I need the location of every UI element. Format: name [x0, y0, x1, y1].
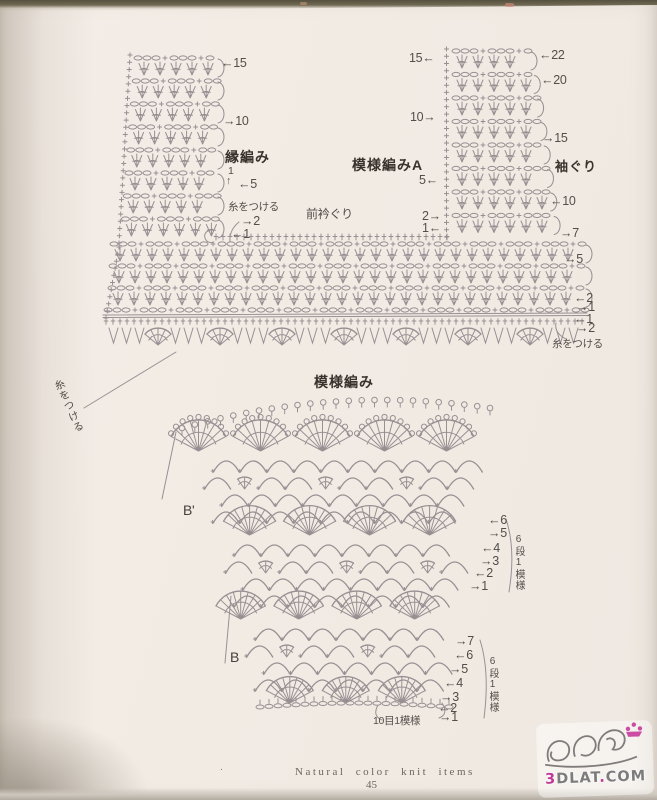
row-arrow: →2 — [576, 322, 595, 335]
row-arrow: ←5 — [238, 178, 257, 191]
row-arrow: →5 — [449, 663, 468, 676]
row-arrow: 10→ — [410, 111, 436, 124]
marker-b: B — [230, 650, 239, 664]
row-repeat-label: 6段1模様 — [513, 534, 523, 591]
row-arrow: →15 — [542, 132, 568, 145]
row-arrow: ←1 — [231, 228, 250, 241]
watermark-text: 3DLAT.COM — [537, 768, 653, 788]
pattern-title: 模様編み — [314, 375, 374, 389]
book-series-title: Natural color knit items — [295, 766, 475, 778]
row-arrow: ←6 — [454, 649, 473, 662]
row-arrow: ←22 — [539, 49, 565, 62]
watermark-3: 3 — [545, 771, 557, 787]
watermark-com: COM — [606, 768, 647, 785]
row-arrow: ←4 — [481, 542, 500, 555]
watermark-dlat: DLAT — [556, 770, 600, 787]
pattern-a-title: 模様編みA — [352, 158, 423, 172]
row-arrow: →1 — [439, 711, 458, 724]
row-arrow: →5 — [564, 253, 583, 266]
row-arrow: →7 — [455, 635, 474, 648]
row-arrow: 1← — [422, 222, 441, 235]
scanned-book-page: ←15 →10 縁編み 1 ↑ ←5 糸をつける →2 ←1 糸をつける 15←… — [0, 0, 657, 800]
row-arrow: ←10 — [550, 195, 576, 208]
footer-dot: . — [220, 762, 223, 773]
row-arrow: ←15 — [221, 57, 247, 70]
row-repeat-label: 6段1模様 — [487, 656, 497, 713]
row-arrow: →1 — [469, 580, 488, 593]
attach-yarn-label: 糸をつける — [228, 202, 279, 213]
row-arrow: 5← — [419, 174, 438, 187]
watermark-calligraphy — [536, 720, 654, 774]
row-arrow: ←4 — [444, 677, 463, 690]
watermark-logo: 3DLAT.COM — [536, 720, 655, 798]
front-neckline-label: 前衿ぐり — [306, 208, 353, 220]
row-arrow: 15← — [409, 52, 435, 65]
attach-yarn-label: 糸をつける — [552, 339, 603, 350]
row-arrow: →2 — [241, 215, 260, 228]
row-arrow: →7 — [560, 227, 579, 240]
row-arrow: ←2 — [474, 567, 493, 580]
armhole-label: 袖ぐり — [555, 160, 597, 173]
row-arrow: →5 — [488, 527, 507, 540]
crochet-chart-canvas — [0, 0, 657, 800]
up-arrow: ↑ — [226, 176, 231, 187]
edge-band-title: 縁編み — [225, 150, 270, 164]
stitch-repeat-label: 10目1模様 — [373, 716, 420, 727]
page-number: 45 — [366, 779, 377, 791]
row-arrow: ←6 — [488, 514, 507, 527]
marker-b-prime: B' — [183, 503, 194, 517]
row-arrow: →10 — [223, 115, 249, 128]
row-arrow: ←20 — [541, 74, 567, 87]
